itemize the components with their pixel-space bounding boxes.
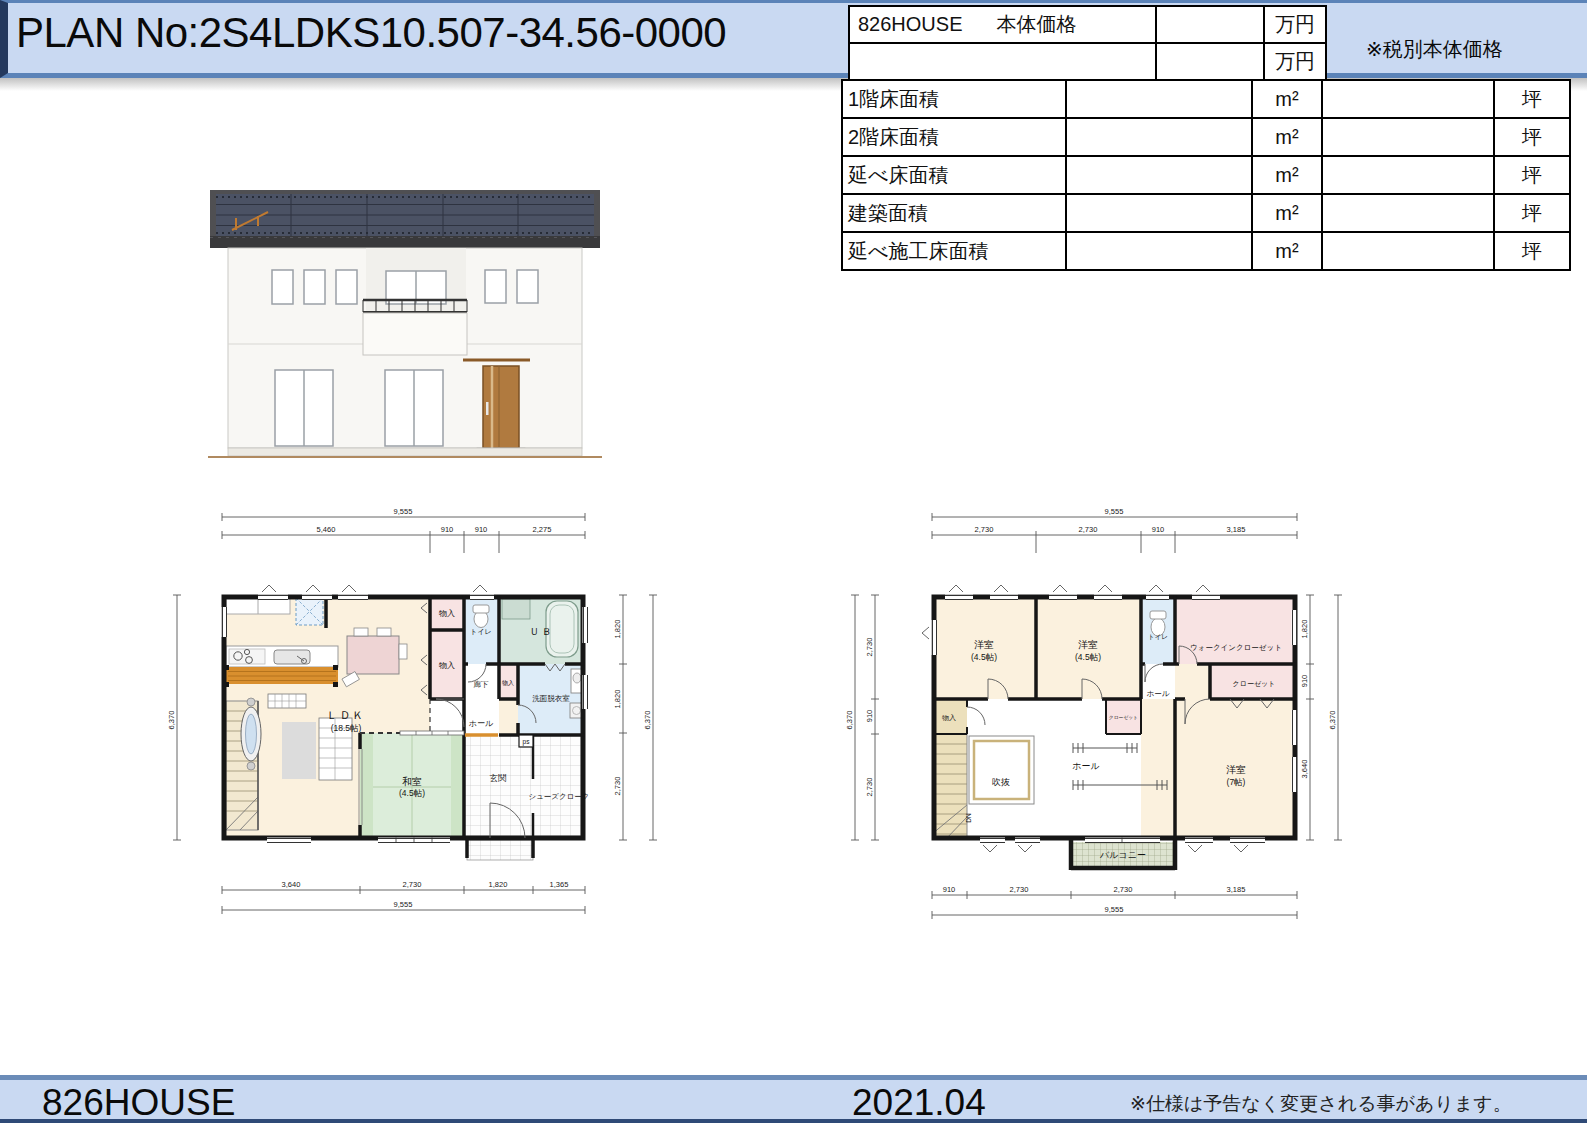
area-row: 1階床面積 m² 坪 bbox=[842, 80, 1570, 118]
dim-top-1: 5,460 bbox=[317, 525, 336, 534]
price-row1-value bbox=[1156, 6, 1264, 43]
price-label: 本体価格 bbox=[997, 13, 1077, 35]
dim-top-2: 2,730 bbox=[1079, 525, 1098, 534]
room-label-closet1: クローゼット bbox=[1233, 680, 1276, 687]
dim-left-2: 910 bbox=[865, 710, 874, 723]
room-label-bedroom1: 洋室 bbox=[974, 639, 994, 650]
area-row: 延べ施工床面積 m² 坪 bbox=[842, 232, 1570, 270]
stairs-dn-label: DN bbox=[965, 813, 972, 823]
footer-note: ※仕様は予告なく変更される事があります。 bbox=[1130, 1091, 1512, 1117]
area-label-1f: 1階床面積 bbox=[842, 80, 1066, 118]
room-label-storage2: 物入 bbox=[438, 661, 455, 670]
room-label-hall-upper: ホール bbox=[1147, 689, 1170, 698]
tax-note: ※税別本体価格 bbox=[1366, 36, 1503, 63]
dim-left-1: 2,730 bbox=[865, 638, 874, 657]
foundation bbox=[208, 448, 602, 457]
room-label-toilet: トイレ bbox=[470, 628, 492, 635]
area-row: 2階床面積 m² 坪 bbox=[842, 118, 1570, 156]
area-value-tsubo bbox=[1322, 194, 1494, 232]
dim-top-4: 2,275 bbox=[533, 525, 552, 534]
dim-right-2: 910 bbox=[1300, 675, 1309, 688]
dim-bottom-4: 3,185 bbox=[1227, 885, 1246, 894]
room-label-ps: ps bbox=[523, 738, 531, 746]
area-unit-tsubo: 坪 bbox=[1494, 80, 1570, 118]
price-table: 826HOUSE本体価格 万円 万円 bbox=[848, 5, 1327, 81]
room-label-bedroom3: 洋室 bbox=[1226, 764, 1246, 775]
area-unit-tsubo: 坪 bbox=[1494, 194, 1570, 232]
room-label-bedroom2-size: (4.5帖) bbox=[1075, 652, 1101, 662]
dim-bottom-3: 1,820 bbox=[489, 880, 508, 889]
room-label-storage3: 物入 bbox=[502, 679, 514, 687]
area-value-m2 bbox=[1066, 232, 1252, 270]
plan-sheet-page: PLAN No:2S4LDKS10.507-34.56-0000 ※税別本体価格… bbox=[0, 0, 1587, 1123]
dim-right-1: 1,820 bbox=[613, 620, 622, 639]
price-row2-unit: 万円 bbox=[1264, 43, 1326, 80]
void-opening bbox=[969, 736, 1034, 804]
dim-top-4: 3,185 bbox=[1227, 525, 1246, 534]
room-label-hall: ホール bbox=[1072, 761, 1099, 771]
area-unit-tsubo: 坪 bbox=[1494, 156, 1570, 194]
dim-top-3: 910 bbox=[475, 525, 488, 534]
footer-date: 2021.04 bbox=[852, 1082, 986, 1123]
sink bbox=[274, 650, 310, 664]
area-value-tsubo bbox=[1322, 80, 1494, 118]
footer-brand: 826HOUSE bbox=[42, 1082, 235, 1123]
second-floor-plan: 9,555 2,730 2,730 910 3,185 6,370 2,730 … bbox=[830, 495, 1370, 945]
area-row: 建築面積 m² 坪 bbox=[842, 194, 1570, 232]
price-row1-label: 826HOUSE本体価格 bbox=[849, 6, 1156, 43]
area-label-total-floor: 延べ床面積 bbox=[842, 156, 1066, 194]
dim-bottom-total: 9,555 bbox=[394, 900, 413, 909]
room-label-entrance: 玄関 bbox=[490, 773, 507, 783]
dim-top-total: 9,555 bbox=[394, 507, 413, 516]
room-label-ldk: ＬＤＫ bbox=[327, 709, 366, 721]
room-label-toilet2: トイレ bbox=[1148, 633, 1168, 640]
dim-top-3: 910 bbox=[1152, 525, 1165, 534]
room-label-washitsu-size: (4.5帖) bbox=[399, 788, 425, 798]
area-table: 1階床面積 m² 坪 2階床面積 m² 坪 延べ床面積 m² 坪 建築面積 m²… bbox=[841, 79, 1571, 271]
dim-top-1: 2,730 bbox=[975, 525, 994, 534]
area-value-m2 bbox=[1066, 194, 1252, 232]
room-label-bedroom3-size: (7帖) bbox=[1227, 777, 1246, 787]
area-row: 延べ床面積 m² 坪 bbox=[842, 156, 1570, 194]
house-elevation bbox=[180, 170, 630, 480]
room-label-bedroom1-size: (4.5帖) bbox=[971, 652, 997, 662]
area-unit-m2: m² bbox=[1252, 194, 1322, 232]
dim-bottom-3: 2,730 bbox=[1114, 885, 1133, 894]
dim-bottom-4: 1,365 bbox=[550, 880, 569, 889]
dim-bottom-total: 9,555 bbox=[1105, 905, 1124, 914]
price-row-1: 826HOUSE本体価格 万円 bbox=[849, 6, 1326, 43]
dim-left-total: 6,370 bbox=[845, 711, 854, 730]
dim-bottom-1: 3,640 bbox=[282, 880, 301, 889]
area-unit-tsubo: 坪 bbox=[1494, 232, 1570, 270]
room-label-washitsu: 和室 bbox=[402, 776, 422, 787]
dim-left-total: 6,370 bbox=[167, 711, 176, 730]
room-label-storage1: 物入 bbox=[438, 609, 455, 618]
area-value-tsubo bbox=[1322, 232, 1494, 270]
room-label-bath: ＵＢ bbox=[529, 626, 555, 637]
dim-top-2: 910 bbox=[441, 525, 454, 534]
room-label-wic: ウォークインクローゼット bbox=[1190, 643, 1282, 652]
area-value-m2 bbox=[1066, 156, 1252, 194]
room-label-closet2: クローゼット bbox=[1109, 715, 1138, 720]
area-unit-tsubo: 坪 bbox=[1494, 118, 1570, 156]
brand-name: 826HOUSE bbox=[858, 13, 963, 35]
price-row-2: 万円 bbox=[849, 43, 1326, 80]
floor2-room-fills bbox=[932, 595, 1297, 868]
dim-right-2: 1,820 bbox=[613, 690, 622, 709]
stove bbox=[229, 649, 265, 664]
room-label-shoe-closet: シューズクローク bbox=[528, 792, 589, 801]
price-row2-label bbox=[849, 43, 1156, 80]
room-label-bedroom2: 洋室 bbox=[1078, 639, 1098, 650]
area-label-building: 建築面積 bbox=[842, 194, 1066, 232]
dim-right-1: 1,820 bbox=[1300, 620, 1309, 639]
dim-top-total: 9,555 bbox=[1105, 507, 1124, 516]
room-label-corridor: 廊下 bbox=[474, 680, 490, 689]
dim-right-3: 2,730 bbox=[613, 777, 622, 796]
price-row2-value bbox=[1156, 43, 1264, 80]
area-value-tsubo bbox=[1322, 156, 1494, 194]
price-row1-unit: 万円 bbox=[1264, 6, 1326, 43]
area-unit-m2: m² bbox=[1252, 118, 1322, 156]
area-label-construction: 延べ施工床面積 bbox=[842, 232, 1066, 270]
area-label-2f: 2階床面積 bbox=[842, 118, 1066, 156]
dim-bottom-2: 2,730 bbox=[403, 880, 422, 889]
first-floor-plan: 9,555 5,460 910 910 2,275 6,370 1,820 1,… bbox=[150, 495, 670, 915]
top-banner: PLAN No:2S4LDKS10.507-34.56-0000 ※税別本体価格 bbox=[0, 0, 1587, 78]
room-label-balcony: バルコニー bbox=[1099, 850, 1146, 860]
area-value-m2 bbox=[1066, 80, 1252, 118]
dim-left-3: 2,730 bbox=[865, 778, 874, 797]
area-value-m2 bbox=[1066, 118, 1252, 156]
dim-right-3: 3,640 bbox=[1300, 760, 1309, 779]
plan-number: PLAN No:2S4LDKS10.507-34.56-0000 bbox=[16, 9, 726, 57]
room-label-ldk-size: (18.5帖) bbox=[331, 723, 362, 733]
room-label-storage: 物入 bbox=[942, 714, 956, 722]
area-unit-m2: m² bbox=[1252, 232, 1322, 270]
area-value-tsubo bbox=[1322, 118, 1494, 156]
dim-bottom-2: 2,730 bbox=[1010, 885, 1029, 894]
dim-bottom-1: 910 bbox=[943, 885, 956, 894]
roof bbox=[210, 190, 600, 248]
dim-right-total: 6,370 bbox=[1328, 711, 1337, 730]
room-label-hall: ホール bbox=[469, 719, 494, 728]
room-label-washroom: 洗面脱衣室 bbox=[532, 694, 570, 703]
footer-bar: 826HOUSE 2021.04 ※仕様は予告なく変更される事があります。 bbox=[0, 1075, 1587, 1123]
area-unit-m2: m² bbox=[1252, 156, 1322, 194]
room-label-void: 吹抜 bbox=[992, 777, 1010, 787]
dim-right-total: 6,370 bbox=[643, 711, 652, 730]
area-unit-m2: m² bbox=[1252, 80, 1322, 118]
